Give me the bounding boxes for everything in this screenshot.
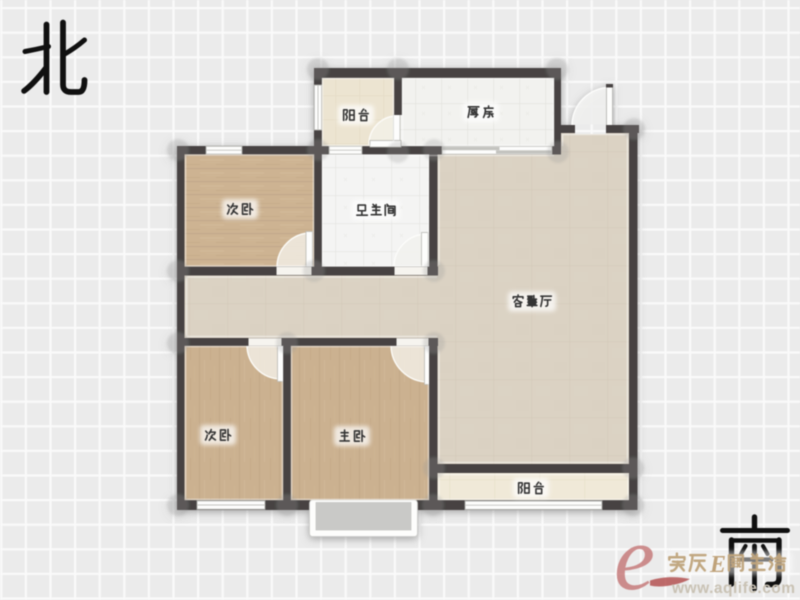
svg-text:E: E bbox=[709, 552, 726, 578]
svg-text:e: e bbox=[614, 507, 655, 600]
svg-text:www.aqlife.com: www.aqlife.com bbox=[671, 580, 796, 597]
